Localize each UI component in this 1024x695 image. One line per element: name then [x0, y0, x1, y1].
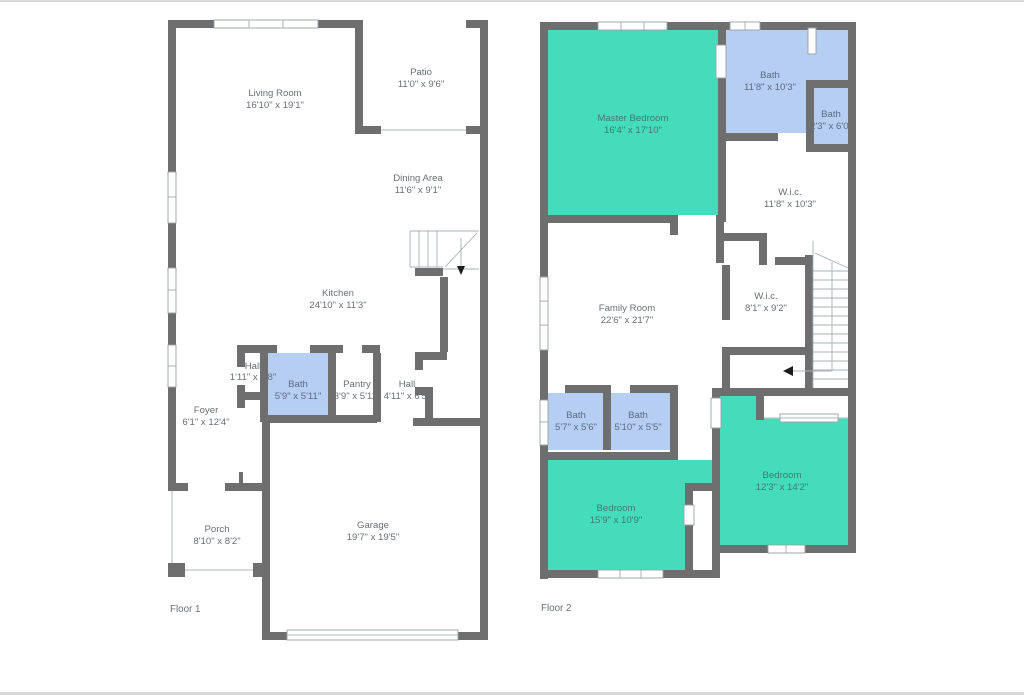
- floor2-plan: Master Bedroom 16'4" x 17'10" Bath 11'8"…: [540, 22, 856, 614]
- stairs-down-arrow: [783, 366, 793, 376]
- svg-text:12'3" x 14'2": 12'3" x 14'2": [756, 482, 809, 493]
- wall-segment: [712, 428, 720, 578]
- top-frame-line: [0, 0, 1024, 2]
- window: [168, 345, 176, 387]
- window: [540, 277, 548, 350]
- svg-text:Bedroom: Bedroom: [597, 503, 636, 514]
- svg-text:Hall: Hall: [245, 361, 262, 372]
- wall-segment: [168, 313, 176, 345]
- floor2-caption: Floor 2: [541, 603, 572, 614]
- room-label-foyer: Foyer 6'1" x 12'4": [182, 405, 229, 428]
- wall-segment: [413, 418, 488, 426]
- room-label-living-room: Living Room 16'10" x 19'1": [246, 88, 304, 111]
- svg-text:Patio: Patio: [410, 67, 432, 78]
- room-label-patio: Patio 11'0" x 9'6": [398, 67, 445, 90]
- wall-segment: [670, 223, 678, 235]
- wall-segment: [685, 491, 693, 505]
- svg-text:Family Room: Family Room: [599, 303, 656, 314]
- wall-segment: [540, 445, 548, 579]
- svg-text:Bath: Bath: [821, 109, 841, 120]
- svg-text:Kitchen: Kitchen: [322, 288, 354, 299]
- room-label-master-bedroom: Master Bedroom 16'4" x 17'10": [598, 113, 669, 136]
- room-label-bedroom-left: Bedroom 15'9" x 10'9": [590, 503, 643, 526]
- floor-plan-drawing: Living Room 16'10" x 19'1" Patio 11'0" x…: [0, 0, 1024, 695]
- wall-segment: [540, 215, 678, 223]
- wall-segment: [415, 360, 423, 370]
- wall-segment: [805, 545, 856, 553]
- svg-text:1'11" x 3'8": 1'11" x 3'8": [230, 372, 277, 383]
- wall-segment: [168, 223, 176, 268]
- wall-segment: [806, 144, 856, 152]
- window: [598, 570, 663, 578]
- floor1-plan: Living Room 16'10" x 19'1" Patio 11'0" x…: [168, 20, 488, 640]
- svg-text:Foyer: Foyer: [194, 405, 219, 416]
- wall-segment: [756, 396, 764, 420]
- svg-text:11'8" x 10'3": 11'8" x 10'3": [744, 82, 796, 93]
- room-label-porch: Porch 8'10" x 8'2": [193, 524, 240, 547]
- svg-text:3'9" x 5'11": 3'9" x 5'11": [334, 391, 381, 402]
- window: [768, 545, 805, 553]
- porch-post: [168, 563, 185, 577]
- wall-segment: [540, 22, 598, 30]
- bedroom-left-room-extension: [685, 460, 712, 483]
- wall-segment: [759, 233, 767, 265]
- floor1-windows: [168, 20, 458, 640]
- wall-segment: [722, 265, 730, 320]
- wall-segment: [603, 385, 611, 450]
- svg-text:Pantry: Pantry: [343, 379, 371, 390]
- wall-segment: [318, 20, 360, 28]
- wall-segment: [262, 632, 287, 640]
- wall-segment: [168, 387, 176, 483]
- wall-segment: [168, 483, 188, 491]
- floor1-caption: Floor 1: [170, 604, 201, 615]
- wall-segment: [355, 20, 363, 134]
- svg-text:Porch: Porch: [204, 524, 229, 535]
- room-label-dining-area: Dining Area 11'6" x 9'1": [393, 173, 443, 196]
- wall-segment: [805, 255, 813, 388]
- door-frame-tick: [239, 472, 243, 484]
- wall-segment: [262, 420, 270, 640]
- wall-segment: [540, 350, 548, 400]
- wall-segment: [362, 345, 380, 353]
- room-label-wic-large: W.i.c. 11'8" x 10'3": [764, 187, 816, 210]
- door-slot: [808, 28, 816, 54]
- floor-plan-page: Living Room 16'10" x 19'1" Patio 11'0" x…: [0, 0, 1024, 695]
- wall-segment: [373, 353, 381, 422]
- garage-door: [287, 630, 458, 640]
- door-slot: [711, 398, 721, 428]
- wall-segment: [848, 22, 856, 553]
- svg-text:8'1" x 9'2": 8'1" x 9'2": [745, 303, 787, 314]
- svg-text:16'4" x 17'10": 16'4" x 17'10": [604, 125, 662, 136]
- svg-text:Bath: Bath: [628, 410, 648, 421]
- svg-text:19'7" x 19'5": 19'7" x 19'5": [347, 532, 400, 543]
- svg-text:W.i.c.: W.i.c.: [754, 291, 777, 302]
- svg-text:4'11" x 6'5": 4'11" x 6'5": [384, 391, 431, 402]
- wall-segment: [440, 277, 448, 352]
- floor1-labels: Living Room 16'10" x 19'1" Patio 11'0" x…: [182, 67, 444, 547]
- wall-segment: [355, 126, 381, 134]
- svg-text:Living Room: Living Room: [248, 88, 301, 99]
- svg-text:11'8" x 10'3": 11'8" x 10'3": [764, 199, 816, 210]
- floor1-walls: [168, 20, 488, 640]
- stairs-down-arrow: [457, 266, 465, 275]
- svg-text:16'10" x 19'1": 16'10" x 19'1": [246, 100, 304, 111]
- svg-text:Hall: Hall: [399, 379, 416, 390]
- svg-text:2'3" x 6'0": 2'3" x 6'0": [810, 121, 852, 132]
- svg-text:W.i.c.: W.i.c.: [778, 187, 801, 198]
- wall-segment: [726, 133, 778, 141]
- wall-segment: [806, 85, 814, 152]
- window: [598, 22, 667, 30]
- svg-text:Bath: Bath: [288, 379, 308, 390]
- wall-segment: [712, 545, 768, 553]
- svg-text:24'10" x 11'3": 24'10" x 11'3": [309, 300, 366, 311]
- wall-segment: [712, 388, 856, 396]
- window: [540, 400, 548, 445]
- svg-text:15'9" x 10'9": 15'9" x 10'9": [590, 515, 643, 526]
- svg-text:Dining Area: Dining Area: [393, 173, 443, 184]
- window: [214, 20, 318, 28]
- svg-text:Garage: Garage: [357, 520, 389, 531]
- wall-segment: [718, 78, 726, 222]
- wall-segment: [237, 345, 277, 353]
- svg-text:Bedroom: Bedroom: [763, 470, 802, 481]
- svg-text:5'7" x 5'6": 5'7" x 5'6": [555, 422, 597, 433]
- window: [168, 268, 176, 313]
- wall-segment: [670, 385, 678, 452]
- wall-segment: [540, 22, 548, 277]
- svg-text:22'6" x 21'7": 22'6" x 21'7": [601, 315, 654, 326]
- wall-segment: [458, 632, 488, 640]
- room-label-kitchen: Kitchen 24'10" x 11'3": [309, 288, 366, 311]
- room-label-garage: Garage 19'7" x 19'5": [347, 520, 400, 543]
- svg-text:6'1" x 12'4": 6'1" x 12'4": [182, 417, 229, 428]
- wall-segment: [718, 22, 726, 45]
- window: [730, 22, 760, 30]
- wall-segment: [480, 20, 488, 640]
- wall-segment: [685, 525, 693, 572]
- wall-segment: [540, 452, 678, 460]
- wall-segment: [415, 268, 443, 276]
- svg-text:Master Bedroom: Master Bedroom: [598, 113, 669, 124]
- wall-segment: [565, 385, 603, 393]
- wall-segment: [168, 20, 176, 172]
- door-slot: [716, 45, 726, 78]
- wall-segment: [722, 355, 730, 388]
- window: [168, 172, 176, 223]
- door-slot: [684, 505, 694, 525]
- room-label-hall: Hall 4'11" x 6'5": [384, 379, 431, 402]
- wall-segment: [685, 483, 720, 491]
- wall-segment: [806, 80, 848, 88]
- svg-text:Bath: Bath: [760, 70, 780, 81]
- svg-text:8'10" x 8'2": 8'10" x 8'2": [193, 536, 240, 547]
- wall-segment: [262, 415, 377, 423]
- svg-text:Bath: Bath: [566, 410, 586, 421]
- wall-segment: [328, 353, 336, 422]
- room-label-family-room: Family Room 22'6" x 21'7": [599, 303, 656, 326]
- wall-segment: [415, 352, 447, 360]
- svg-text:11'6" x 9'1": 11'6" x 9'1": [395, 185, 442, 196]
- svg-text:11'0" x 9'6": 11'0" x 9'6": [398, 79, 445, 90]
- wall-segment: [237, 385, 245, 408]
- svg-text:5'10" x 5'5": 5'10" x 5'5": [614, 422, 661, 433]
- room-label-bedroom-right: Bedroom 12'3" x 14'2": [756, 470, 809, 493]
- wall-segment: [310, 345, 343, 353]
- room-label-wic-small: W.i.c. 8'1" x 9'2": [745, 291, 787, 314]
- wall-segment: [722, 347, 813, 355]
- svg-text:5'9" x 5'11": 5'9" x 5'11": [275, 391, 322, 402]
- wall-segment: [540, 570, 598, 578]
